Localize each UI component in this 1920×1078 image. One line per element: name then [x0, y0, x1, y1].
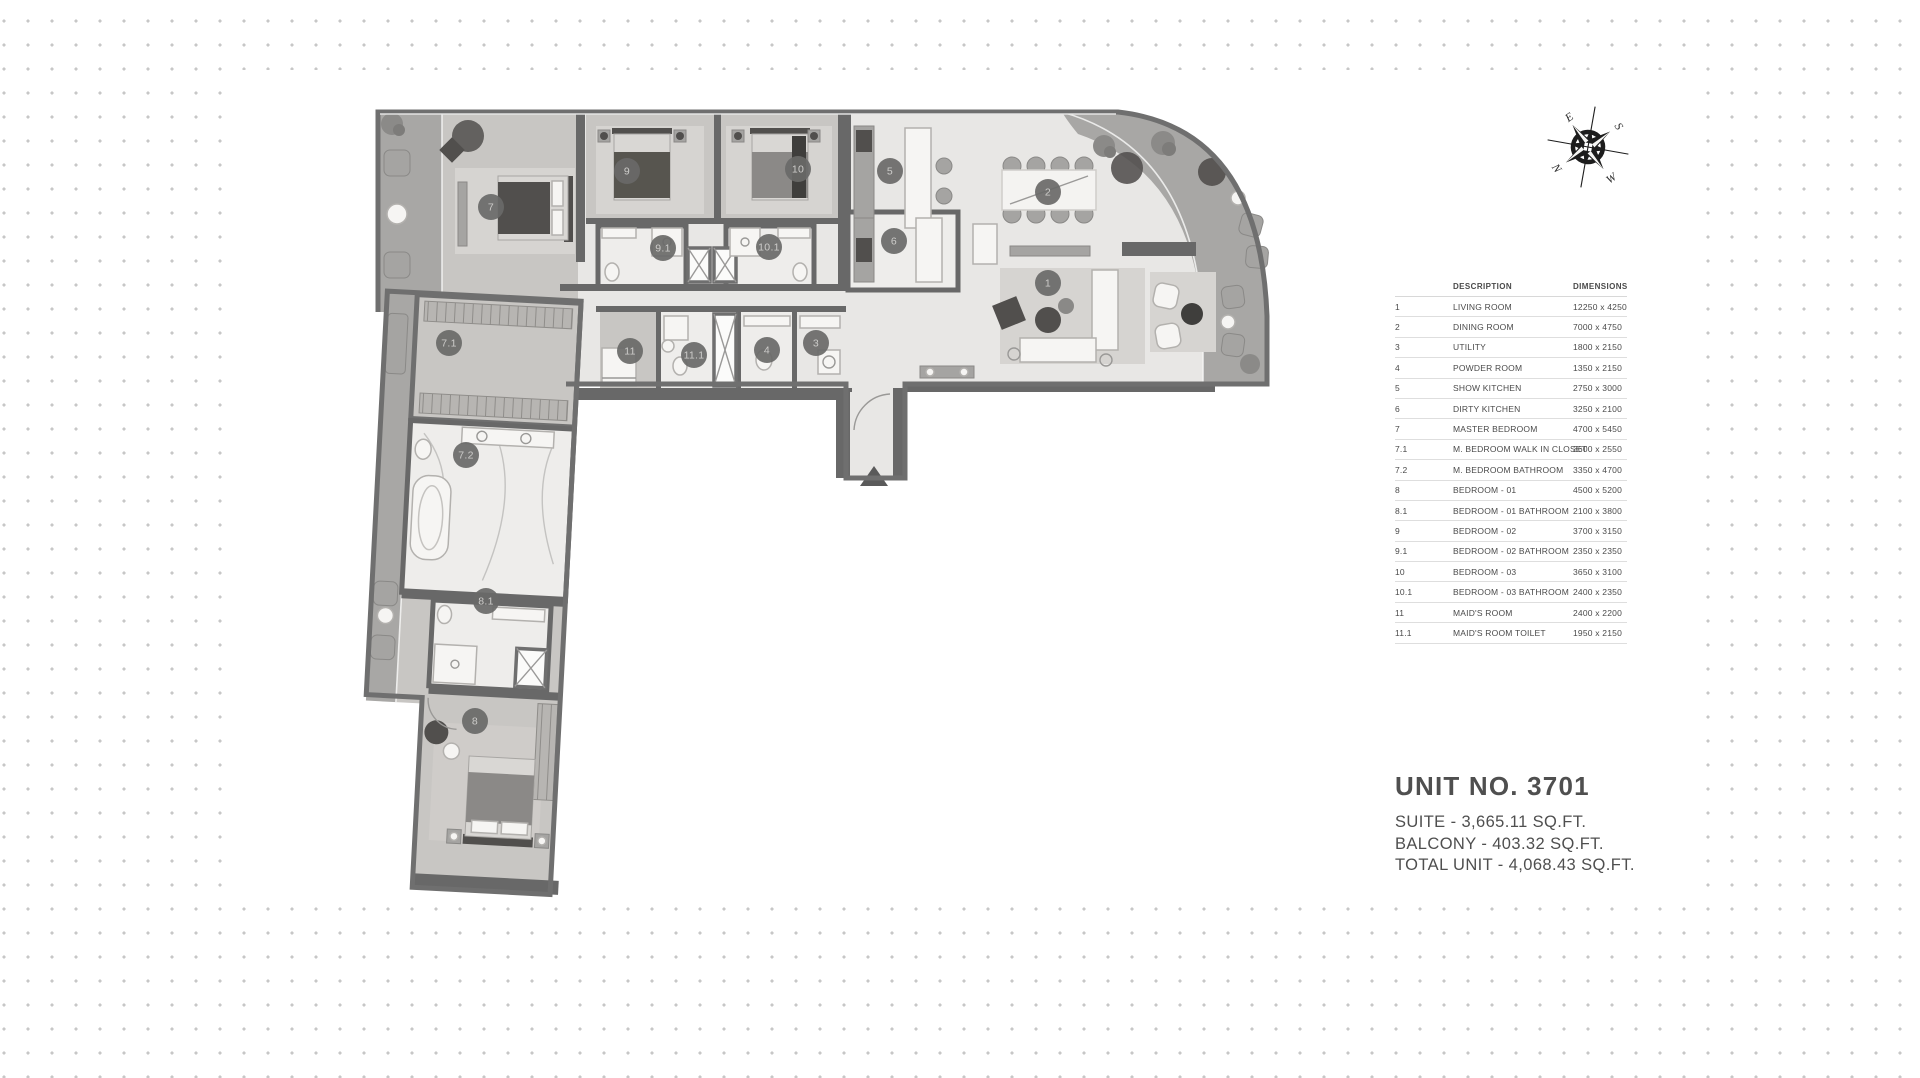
svg-text:2: 2	[1045, 187, 1051, 199]
room-marker: 10.1	[756, 234, 782, 260]
table-row: 8BEDROOM - 014500 x 5200	[1395, 481, 1627, 501]
unit-title: UNIT NO. 3701	[1395, 771, 1635, 802]
unit-summary: UNIT NO. 3701 SUITE - 3,665.11 SQ.FT. BA…	[1395, 771, 1635, 877]
room-marker: 8	[462, 708, 488, 734]
svg-text:9.1: 9.1	[655, 243, 671, 255]
table-row: 7MASTER BEDROOM4700 x 5450	[1395, 419, 1627, 439]
svg-text:7.2: 7.2	[458, 450, 474, 462]
rooms-table-header: DESCRIPTION DIMENSIONS	[1395, 276, 1627, 297]
room-marker: 2	[1035, 179, 1061, 205]
left-wing	[356, 291, 589, 895]
floor-plan: 12345677.17.288.199.11010.11111.1	[0, 0, 1920, 1078]
room-marker: 5	[877, 158, 903, 184]
table-row: 10.1BEDROOM - 03 BATHROOM2400 x 2350	[1395, 582, 1627, 602]
svg-text:8.1: 8.1	[478, 596, 494, 608]
entry-corridor	[850, 392, 893, 486]
table-row: 6DIRTY KITCHEN3250 x 2100	[1395, 399, 1627, 419]
rooms-table-body: 1LIVING ROOM12250 x 42502DINING ROOM7000…	[1395, 297, 1627, 644]
svg-text:7.1: 7.1	[441, 338, 457, 350]
room-marker: 7	[478, 194, 504, 220]
dimensions-header: DIMENSIONS	[1573, 282, 1628, 291]
svg-text:5: 5	[887, 166, 893, 178]
total-area: TOTAL UNIT - 4,068.43 SQ.FT.	[1395, 855, 1635, 877]
room-marker: 1	[1035, 270, 1061, 296]
svg-text:6: 6	[891, 236, 897, 248]
svg-text:3: 3	[813, 338, 819, 350]
room-marker: 9.1	[650, 235, 676, 261]
room-marker: 7.1	[436, 330, 462, 356]
room-marker: 3	[803, 330, 829, 356]
svg-text:10.1: 10.1	[758, 242, 780, 254]
table-row: 10BEDROOM - 033650 x 3100	[1395, 562, 1627, 582]
bedroom-03-furniture	[726, 126, 832, 214]
svg-text:4: 4	[764, 345, 770, 357]
room-marker: 7.2	[453, 442, 479, 468]
master-bathroom	[402, 421, 575, 601]
suite-area: SUITE - 3,665.11 SQ.FT.	[1395, 812, 1635, 834]
table-row: 8.1BEDROOM - 01 BATHROOM2100 x 3800	[1395, 501, 1627, 521]
room-marker: 8.1	[473, 588, 499, 614]
table-row: 7.2M. BEDROOM BATHROOM3350 x 4700	[1395, 460, 1627, 480]
table-row: 7.1M. BEDROOM WALK IN CLOSET3600 x 2550	[1395, 440, 1627, 460]
room-marker: 11	[617, 338, 643, 364]
svg-text:11.1: 11.1	[684, 350, 705, 362]
svg-text:9: 9	[624, 166, 630, 178]
table-row: 2DINING ROOM7000 x 4750	[1395, 317, 1627, 337]
balcony-area: BALCONY - 403.32 SQ.FT.	[1395, 834, 1635, 856]
table-row: 11MAID'S ROOM2400 x 2200	[1395, 603, 1627, 623]
table-row: 1LIVING ROOM12250 x 4250	[1395, 297, 1627, 317]
room-marker: 10	[785, 156, 811, 182]
table-row: 9.1BEDROOM - 02 BATHROOM2350 x 2350	[1395, 542, 1627, 562]
svg-text:7: 7	[488, 202, 494, 214]
description-header: DESCRIPTION	[1453, 282, 1573, 291]
table-row: 9BEDROOM - 023700 x 3150	[1395, 521, 1627, 541]
room-marker: 4	[754, 337, 780, 363]
floorplan-page: 12345677.17.288.199.11010.11111.1	[0, 0, 1920, 1078]
rooms-table: DESCRIPTION DIMENSIONS 1LIVING ROOM12250…	[1395, 276, 1627, 644]
room-marker: 9	[614, 158, 640, 184]
room-marker: 6	[881, 228, 907, 254]
svg-text:8: 8	[472, 716, 478, 728]
bedroom-02-furniture	[596, 126, 704, 214]
table-row: 3UTILITY1800 x 2150	[1395, 338, 1627, 358]
table-row: 4POWDER ROOM1350 x 2150	[1395, 358, 1627, 378]
svg-text:11: 11	[624, 346, 636, 358]
table-row: 11.1MAID'S ROOM TOILET1950 x 2150	[1395, 623, 1627, 643]
svg-text:10: 10	[792, 164, 804, 176]
svg-text:1: 1	[1045, 278, 1051, 290]
table-row: 5SHOW KITCHEN2750 x 3000	[1395, 379, 1627, 399]
room-marker: 11.1	[681, 342, 707, 368]
